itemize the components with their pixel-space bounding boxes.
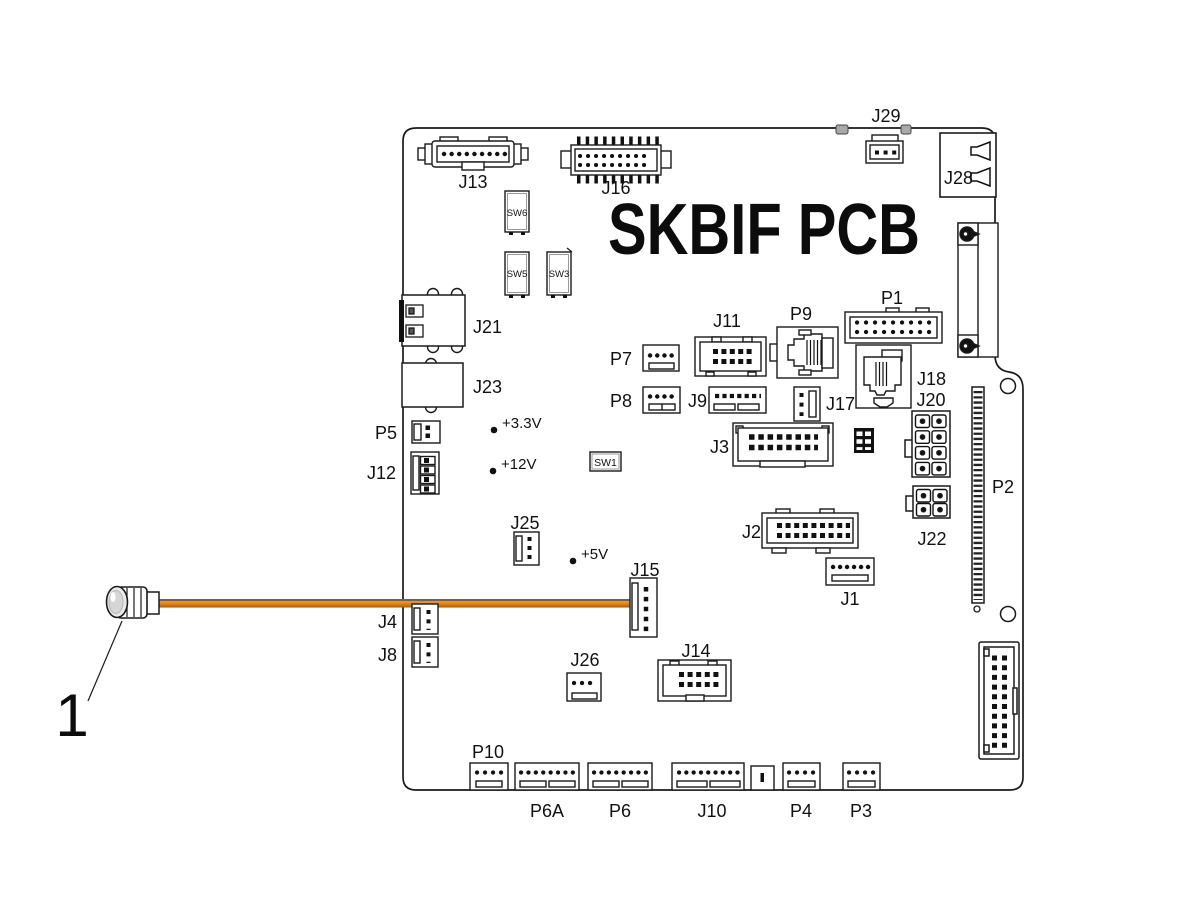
- label-j14: J14: [681, 641, 710, 661]
- callout-number: 1: [55, 682, 88, 749]
- connector-j18: [856, 345, 911, 408]
- label-p5: P5: [375, 423, 397, 443]
- label-j25: J25: [510, 513, 539, 533]
- pcb-diagram-page: J13 J16 SKBIF PCB SW6 SW5 SW3 SW1 J29: [0, 0, 1200, 900]
- mount-hole: [1001, 379, 1016, 394]
- connector-j21: [399, 289, 465, 353]
- label-j2: J2: [742, 522, 761, 542]
- label-j29: J29: [871, 106, 900, 126]
- connector-single-pin: [751, 766, 774, 790]
- mount-hole: [1001, 607, 1016, 622]
- connector-p9: [770, 327, 838, 378]
- label-sw6: SW6: [507, 208, 528, 219]
- label-p1: P1: [881, 288, 903, 308]
- connector-j17: [794, 387, 820, 421]
- connector-j11: [695, 337, 766, 376]
- label-j20: J20: [916, 390, 945, 410]
- label-j15: J15: [630, 560, 659, 580]
- cable-wire: [148, 599, 633, 608]
- connector-j3: [733, 423, 833, 467]
- label-sw5: SW5: [507, 269, 528, 280]
- connector-j20: [905, 411, 950, 477]
- connector-j13: [418, 137, 528, 170]
- connector-j26: [567, 673, 601, 701]
- connector-j16: [561, 141, 671, 179]
- connector-p4: [783, 763, 820, 790]
- connector-p1: [845, 308, 942, 343]
- test-point-12v: [490, 468, 497, 475]
- label-j3: J3: [710, 437, 729, 457]
- label-j26: J26: [570, 650, 599, 670]
- connector-p3: [843, 763, 880, 790]
- connector-p6a: [515, 763, 579, 790]
- mounting-bracket: [958, 223, 998, 357]
- label-j4: J4: [378, 612, 397, 632]
- connector-j23: [402, 359, 463, 413]
- connector-j8: [412, 637, 438, 667]
- label-p2: P2: [992, 477, 1014, 497]
- connector-p6: [588, 763, 652, 790]
- label-p7: P7: [610, 349, 632, 369]
- cable-connector: [107, 587, 160, 619]
- label-j10: J10: [697, 801, 726, 821]
- connector-j14: [658, 660, 731, 701]
- label-j11: J11: [713, 311, 741, 331]
- label-j21: J21: [473, 317, 502, 337]
- edge-pad: [836, 125, 848, 134]
- label-p8: P8: [610, 391, 632, 411]
- label-j17: J17: [826, 394, 855, 414]
- test-point-3v3: [491, 427, 498, 434]
- connector-j1: [826, 558, 874, 585]
- label-sw1: SW1: [594, 457, 617, 469]
- label-p9: P9: [790, 304, 812, 324]
- connector-p10: [470, 763, 508, 790]
- connector-j29: [866, 135, 903, 163]
- edge-pad: [901, 125, 911, 134]
- callout-leader-line: [88, 621, 122, 701]
- test-point-5v: [570, 558, 577, 565]
- label-sw3: SW3: [549, 269, 570, 280]
- label-p4: P4: [790, 801, 812, 821]
- pcb-diagram: J13 J16 SKBIF PCB SW6 SW5 SW3 SW1 J29: [0, 0, 1200, 900]
- label-j28: J28: [944, 168, 973, 188]
- label-p10: P10: [472, 742, 504, 762]
- connector-p8: [643, 387, 680, 413]
- label-j13: J13: [458, 172, 487, 192]
- dip-switch: [854, 428, 874, 453]
- label-j1: J1: [840, 589, 859, 609]
- label-j22: J22: [917, 529, 946, 549]
- connector-j22: [906, 486, 950, 518]
- connector-j4: [412, 604, 438, 634]
- connector-j9: [709, 387, 766, 413]
- connector-j15: [630, 578, 657, 637]
- label-p6a: P6A: [530, 801, 564, 821]
- label-j9: J9: [688, 391, 707, 411]
- label-p3: P3: [850, 801, 872, 821]
- connector-p7: [643, 345, 679, 371]
- label-tp-3v3: +3.3V: [502, 415, 542, 432]
- connector-j2: [762, 509, 858, 553]
- label-j23: J23: [473, 377, 502, 397]
- label-p6: P6: [609, 801, 631, 821]
- label-tp-5v: +5V: [581, 546, 608, 563]
- label-j12: J12: [367, 463, 396, 483]
- connector-j10: [672, 763, 744, 790]
- label-tp-12v: +12V: [501, 456, 536, 473]
- connector-p5: [412, 421, 440, 443]
- label-j18: J18: [917, 369, 946, 389]
- connector-bottom-right-header: [979, 642, 1019, 759]
- label-j8: J8: [378, 645, 397, 665]
- connector-j25: [514, 532, 539, 565]
- connector-j12: [411, 452, 439, 494]
- connector-p2: [972, 387, 984, 612]
- board-title: SKBIF PCB: [608, 190, 920, 270]
